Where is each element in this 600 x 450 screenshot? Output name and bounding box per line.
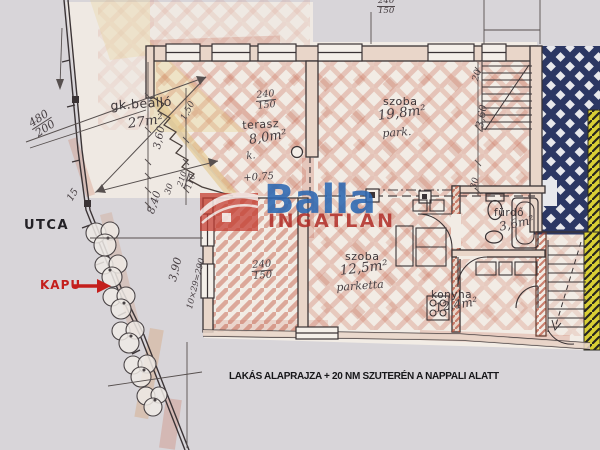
window-top-4 (318, 44, 362, 61)
street-label: UTCA (24, 219, 69, 233)
window-bottom (296, 327, 338, 339)
window-top-5 (428, 44, 474, 61)
floor-plan-scan: UTCA KAPU LAKÁS ALAPRAJZA + 20 NM SZUTER… (0, 0, 600, 450)
window-top-3 (258, 44, 296, 61)
window-top-2 (212, 44, 250, 61)
logo-house-icon (198, 185, 260, 235)
window-top-6 (482, 44, 506, 61)
plan-caption: LAKÁS ALAPRAJZA + 20 NM SZUTERÉN A NAPPA… (229, 372, 499, 383)
gate-label: KAPU (40, 279, 81, 292)
fence-node (84, 200, 91, 207)
dim-room-small-door: 240 150 (251, 260, 274, 283)
floor-label-large: park. (382, 126, 412, 140)
dim-top-door: 240 150 (377, 0, 395, 15)
dim-terrace-door: 240 150 (255, 89, 277, 111)
window-top-1 (166, 44, 200, 61)
fence-node (72, 96, 79, 103)
floor-label-terrace: k. (246, 151, 256, 162)
logo-subtitle: INGATLAN (268, 212, 395, 232)
